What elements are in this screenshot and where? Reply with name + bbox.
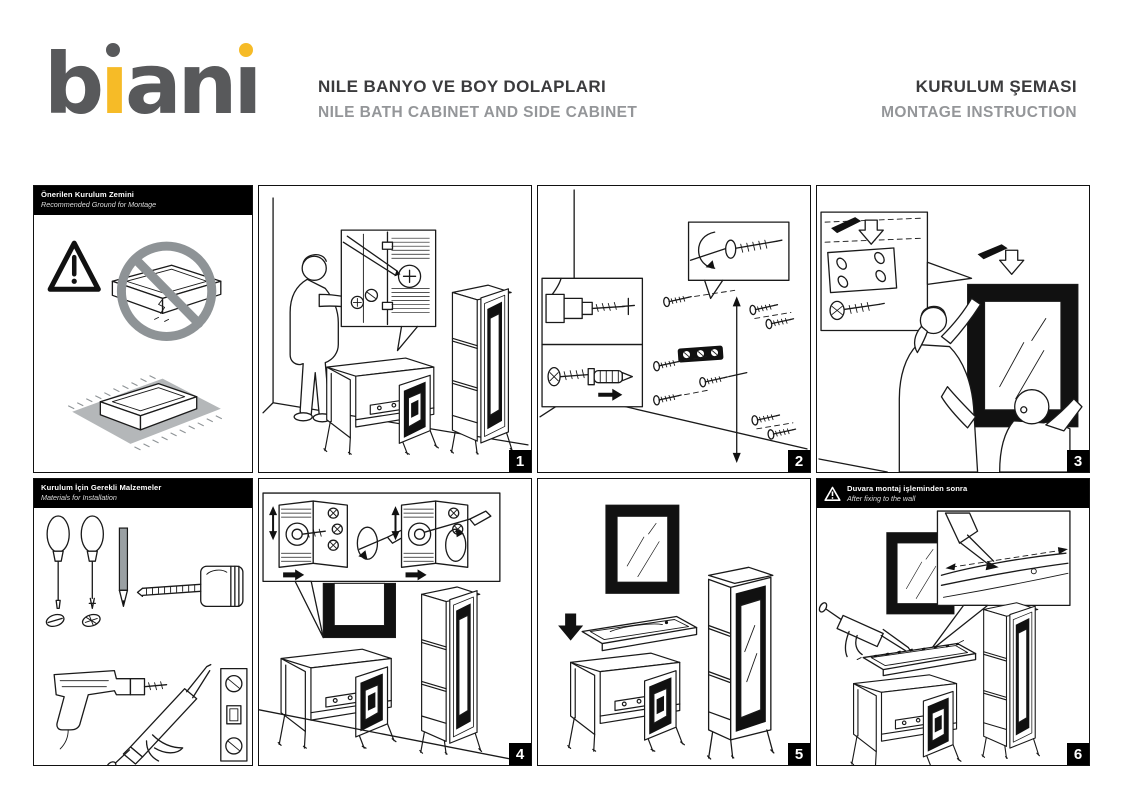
drill-callout	[542, 278, 642, 344]
materials-panel-header: Kurulum İçin Gerekli Malzemeler Material…	[34, 479, 252, 508]
step-6-illustration	[817, 508, 1089, 765]
hanger-plate-callout	[821, 212, 972, 330]
step-panel-6: Duvara montaj işleminden sonra After fix…	[816, 478, 1090, 766]
step-number-badge: 2	[788, 450, 810, 472]
panel-recommended-ground: Önerilen Kurulum Zemini Recommended Grou…	[33, 185, 253, 473]
ground-title: Önerilen Kurulum Zemini	[41, 190, 245, 199]
marking-callout	[341, 230, 435, 350]
logo-letter-b: b	[44, 35, 100, 133]
step-number-badge: 3	[1067, 450, 1089, 472]
step-3-illustration	[817, 186, 1089, 472]
ground-panel-header: Önerilen Kurulum Zemini Recommended Grou…	[34, 186, 252, 215]
materials-title: Kurulum İçin Gerekli Malzemeler	[41, 483, 245, 492]
logo-letter-n: n	[178, 35, 234, 133]
step-number-badge: 4	[509, 743, 531, 765]
logo-letter-a: a	[125, 35, 178, 133]
screw-callout	[689, 222, 789, 298]
step-6-warning-header: Duvara montaj işleminden sonra After fix…	[817, 479, 1089, 508]
framed-mirror	[606, 505, 679, 593]
ground-subtitle: Recommended Ground for Montage	[41, 200, 245, 209]
montage-instruction-sheet: { "page": {"width": 1123, "height": 794,…	[0, 0, 1123, 794]
no-uneven-floor-icon	[112, 246, 220, 336]
warning-triangle-icon	[50, 243, 98, 289]
bath-cabinet	[568, 653, 685, 751]
vertical-measure-arrow	[733, 296, 741, 463]
step-panel-5: 5	[537, 478, 811, 766]
product-title: NILE BANYO VE BOY DOLAPLARI	[318, 77, 637, 97]
materials-subtitle: Materials for Installation	[41, 493, 245, 502]
pencil-icon	[119, 528, 127, 606]
warning-triangle-icon	[824, 486, 841, 502]
step-panel-1: 1	[258, 185, 532, 473]
place-down-arrow	[558, 613, 583, 640]
materials-illustration	[34, 508, 252, 765]
step-number-badge: 6	[1067, 743, 1089, 765]
wall-bracket	[678, 346, 723, 362]
doc-subtitle: MONTAGE INSTRUCTION	[881, 104, 1077, 122]
step-4-illustration	[259, 479, 531, 765]
logo-letter-i1: ı	[100, 38, 125, 130]
step-5-illustration	[538, 479, 810, 765]
carpet-underlay-icon	[68, 376, 222, 450]
step-panel-3: 3	[816, 185, 1090, 473]
panel-materials: Kurulum İçin Gerekli Malzemeler Material…	[33, 478, 253, 766]
logo-dot-yellow	[239, 43, 253, 57]
step-2-illustration	[538, 186, 810, 472]
step-panel-4: 4	[258, 478, 532, 766]
document-title-block: KURULUM ŞEMASI MONTAGE INSTRUCTION	[881, 77, 1077, 122]
dowel-callout	[542, 345, 642, 407]
step-panel-2: 2	[537, 185, 811, 473]
side-cabinet	[708, 567, 774, 759]
step-1-illustration	[259, 186, 531, 472]
side-cabinet	[420, 587, 482, 754]
side-cabinet	[451, 285, 513, 454]
washbasin-top	[582, 616, 696, 650]
screws-into-wall	[653, 290, 796, 439]
framed-mirror	[323, 583, 395, 637]
bath-cabinet	[324, 358, 438, 454]
product-title-block: NILE BANYO VE BOY DOLAPLARI NILE BATH CA…	[318, 77, 637, 122]
step-number-badge: 1	[509, 450, 531, 472]
doc-title: KURULUM ŞEMASI	[881, 77, 1077, 97]
logo-dot-gray	[106, 43, 120, 57]
step-number-badge: 5	[788, 743, 810, 765]
hook-direction-arrow	[978, 244, 1024, 274]
brand-logo: bıanı	[44, 38, 258, 130]
logo-letter-i2: ı	[233, 38, 258, 130]
side-cabinet	[982, 603, 1039, 759]
bath-cabinet	[851, 675, 961, 765]
spirit-level-icon	[221, 669, 247, 761]
flat-screwdriver-icon	[45, 516, 69, 628]
step-6-warning-title: Duvara montaj işleminden sonra	[847, 484, 967, 493]
phillips-screwdriver-icon	[81, 516, 103, 628]
tape-measure-icon	[137, 566, 242, 606]
instruction-grid: Önerilen Kurulum Zemini Recommended Grou…	[33, 185, 1090, 766]
ground-illustration	[34, 215, 252, 472]
product-subtitle: NILE BATH CABINET AND SIDE CABINET	[318, 104, 637, 122]
step-6-warning-subtitle: After fixing to the wall	[847, 494, 967, 503]
